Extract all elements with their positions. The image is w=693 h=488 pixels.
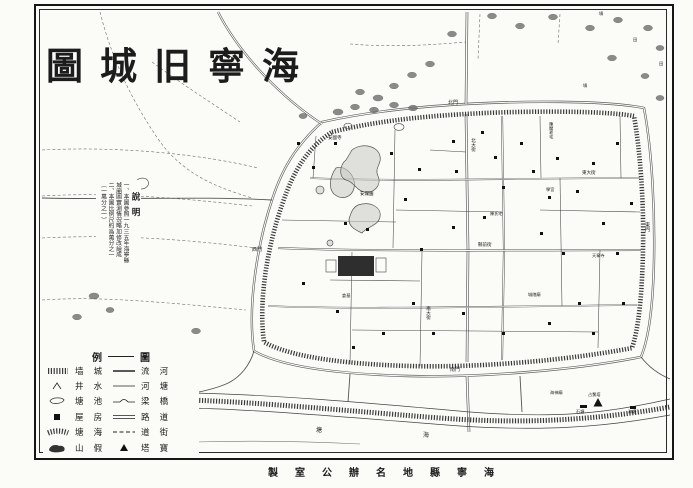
pagoda-icon bbox=[111, 442, 137, 454]
legend-entry-街道: 道 街 bbox=[111, 425, 195, 440]
map-feature-label: 南大街 bbox=[426, 306, 431, 320]
legend-entry-池塘: 塘 池 bbox=[45, 394, 107, 409]
map-feature-label: 海神廟 bbox=[550, 391, 563, 395]
house-icon bbox=[45, 411, 71, 423]
legend-title-rule bbox=[108, 356, 134, 357]
rockery-icon bbox=[45, 442, 71, 454]
scanned-map-page: 圖城旧寧海 說明 一、本圖參照一九三五年海寧縣 城廂圖實測情況略加修改繪成 二、… bbox=[0, 0, 693, 488]
attribution: 製室公辦名地縣寧海 bbox=[268, 464, 511, 479]
map-feature-label: 墳 bbox=[583, 84, 587, 88]
legend-entry-河流: 流 河 bbox=[111, 363, 195, 378]
map-feature-label: 安國寺 bbox=[328, 136, 342, 141]
map-feature-label: 城隍廟 bbox=[528, 293, 541, 297]
map-feature-label: 西門 bbox=[252, 248, 262, 253]
city-wall-icon bbox=[45, 365, 71, 377]
map-feature-label: 占鰲塔 bbox=[588, 393, 601, 397]
legend-title: 例 圖 bbox=[45, 349, 197, 363]
legend-title-right-char: 圖 bbox=[140, 349, 150, 364]
notes-heading: 說明 bbox=[132, 182, 139, 276]
legend-label: 塔 寶 bbox=[141, 442, 172, 454]
legend-label: 井 水 bbox=[75, 380, 106, 392]
map-feature-label: 塘 bbox=[316, 428, 322, 434]
map-feature-label: 田 bbox=[633, 38, 637, 42]
legend-entry-城墙: 墙 城 bbox=[45, 363, 107, 378]
legend-label: 河 塘 bbox=[141, 380, 172, 392]
map-title: 圖城旧寧海 bbox=[46, 36, 316, 90]
legend-label: 道 街 bbox=[141, 426, 172, 438]
legend-entry-房屋: 屋 房 bbox=[45, 409, 107, 424]
legend-label: 墙 城 bbox=[75, 365, 106, 377]
map-feature-label: 學宮 bbox=[546, 188, 554, 192]
map-feature-label: 墳 bbox=[599, 12, 603, 16]
map-feature-label: 天寧寺 bbox=[592, 254, 605, 258]
legend-entries: 墙 城流 河井 水河 塘塘 池梁 橋屋 房路 道塘 海道 街山 假塔 寶 bbox=[45, 363, 197, 455]
legend-label: 山 假 bbox=[75, 442, 106, 454]
seawall-icon bbox=[45, 426, 71, 438]
legend-entry-假山: 山 假 bbox=[45, 440, 107, 455]
notes-line: 二、本圖比例尺約爲萬分之一 bbox=[106, 182, 113, 276]
road-icon bbox=[111, 411, 137, 423]
map-feature-label: 陳閣老宅 bbox=[549, 122, 553, 139]
legend-block: 例 圖 墙 城流 河井 水河 塘塘 池梁 橋屋 房路 道塘 海道 街山 假塔 寶 bbox=[43, 348, 199, 456]
map-feature-label: 石塘 bbox=[576, 410, 584, 414]
map-feature-label: 東門 bbox=[644, 222, 649, 232]
map-feature-label: 陳氏宅 bbox=[490, 212, 503, 216]
map-feature-label: 安瀾園 bbox=[360, 192, 374, 197]
notes-line: （一萬分之一） bbox=[99, 182, 106, 276]
notes-line: 一、本圖參照一九三五年海寧縣 bbox=[121, 182, 128, 276]
map-feature-label: 北門 bbox=[448, 101, 458, 106]
legend-entry-海塘: 塘 海 bbox=[45, 425, 107, 440]
map-feature-label: 海塘 bbox=[628, 410, 636, 414]
map-feature-label: 南門 bbox=[450, 368, 460, 373]
canal-icon bbox=[111, 380, 137, 392]
notes-block: 說明 一、本圖參照一九三五年海寧縣 城廂圖實測情況略加修改繪成 二、本圖比例尺約… bbox=[96, 180, 141, 278]
map-feature-label: 倉基 bbox=[342, 294, 350, 298]
legend-entry-塘河: 河 塘 bbox=[111, 378, 195, 393]
legend-label: 路 道 bbox=[141, 411, 172, 423]
map-feature-label: 田 bbox=[659, 62, 663, 66]
map-feature-label: 縣前街 bbox=[478, 243, 492, 248]
well-icon bbox=[45, 380, 71, 392]
map-feature-label: 北大街 bbox=[471, 138, 476, 152]
legend-entry-橋梁: 梁 橋 bbox=[111, 394, 195, 409]
legend-entry-寶塔: 塔 寶 bbox=[111, 440, 195, 455]
street-icon bbox=[111, 426, 137, 438]
river-icon bbox=[111, 365, 137, 377]
legend-label: 塘 海 bbox=[75, 426, 106, 438]
bridge-icon bbox=[111, 395, 137, 407]
notes-line: 城廂圖實測情況略加修改繪成 bbox=[114, 182, 121, 276]
map-feature-label: 海 bbox=[423, 433, 429, 439]
legend-title-left-char: 例 bbox=[92, 349, 102, 364]
legend-label: 屋 房 bbox=[75, 411, 106, 423]
legend-label: 梁 橋 bbox=[141, 395, 172, 407]
legend-entry-道路: 路 道 bbox=[111, 409, 195, 424]
pond-icon bbox=[45, 395, 71, 407]
map-feature-label: 東大街 bbox=[582, 171, 596, 176]
legend-entry-水井: 井 水 bbox=[45, 378, 107, 393]
legend-label: 塘 池 bbox=[75, 395, 106, 407]
legend-label: 流 河 bbox=[141, 365, 172, 377]
